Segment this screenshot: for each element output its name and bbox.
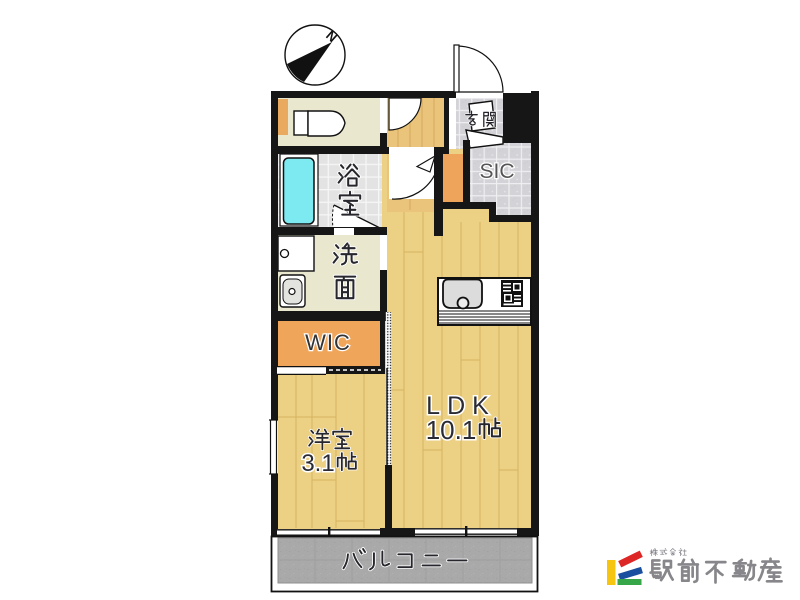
svg-text:10.1: 10.1 [426, 415, 477, 445]
svg-text:WIC: WIC [305, 330, 351, 355]
svg-text:3.1: 3.1 [301, 450, 334, 477]
svg-text:SIC: SIC [479, 160, 514, 183]
